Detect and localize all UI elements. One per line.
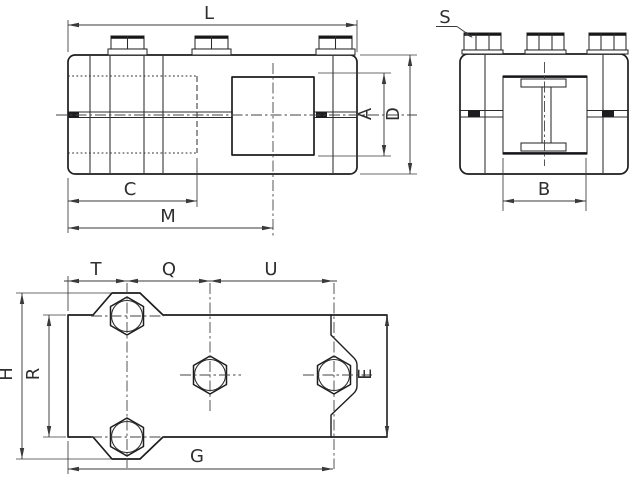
dim-label-c: C bbox=[124, 179, 137, 200]
front-view: L C M A bbox=[56, 3, 417, 236]
dim-label-d: D bbox=[383, 107, 404, 121]
dim-label-t: T bbox=[90, 259, 103, 280]
dim-label-e: E bbox=[355, 368, 376, 379]
dim-label-a: A bbox=[355, 107, 376, 120]
bolt-side-view bbox=[316, 36, 355, 55]
dim-label-b: B bbox=[538, 179, 550, 200]
dim-label-q: Q bbox=[162, 259, 176, 280]
bolt-front-view bbox=[525, 33, 566, 54]
split-tick bbox=[602, 110, 614, 117]
dim-label-g: G bbox=[190, 446, 204, 467]
dim-label-h: H bbox=[0, 367, 17, 381]
dim-label-u: U bbox=[264, 259, 277, 280]
bolt-side-view bbox=[192, 36, 231, 55]
dim-label-s: S bbox=[439, 7, 450, 28]
end-view: S B bbox=[436, 7, 628, 211]
dim-label-l: L bbox=[204, 3, 214, 24]
dimension-M: M bbox=[68, 206, 273, 230]
bolt-side-view bbox=[108, 36, 147, 55]
dim-label-m: M bbox=[160, 206, 176, 227]
conductor-window bbox=[503, 76, 587, 154]
bolt-front-view bbox=[462, 33, 503, 54]
plan-view: T Q U H R E bbox=[0, 259, 389, 474]
dimension-R: R bbox=[23, 315, 66, 437]
dim-label-r: R bbox=[23, 368, 44, 381]
bolt-front-view bbox=[587, 33, 628, 54]
callout-S: S bbox=[436, 7, 473, 38]
technical-drawing-clamp: L C M A bbox=[0, 0, 640, 485]
split-tick bbox=[468, 110, 480, 117]
